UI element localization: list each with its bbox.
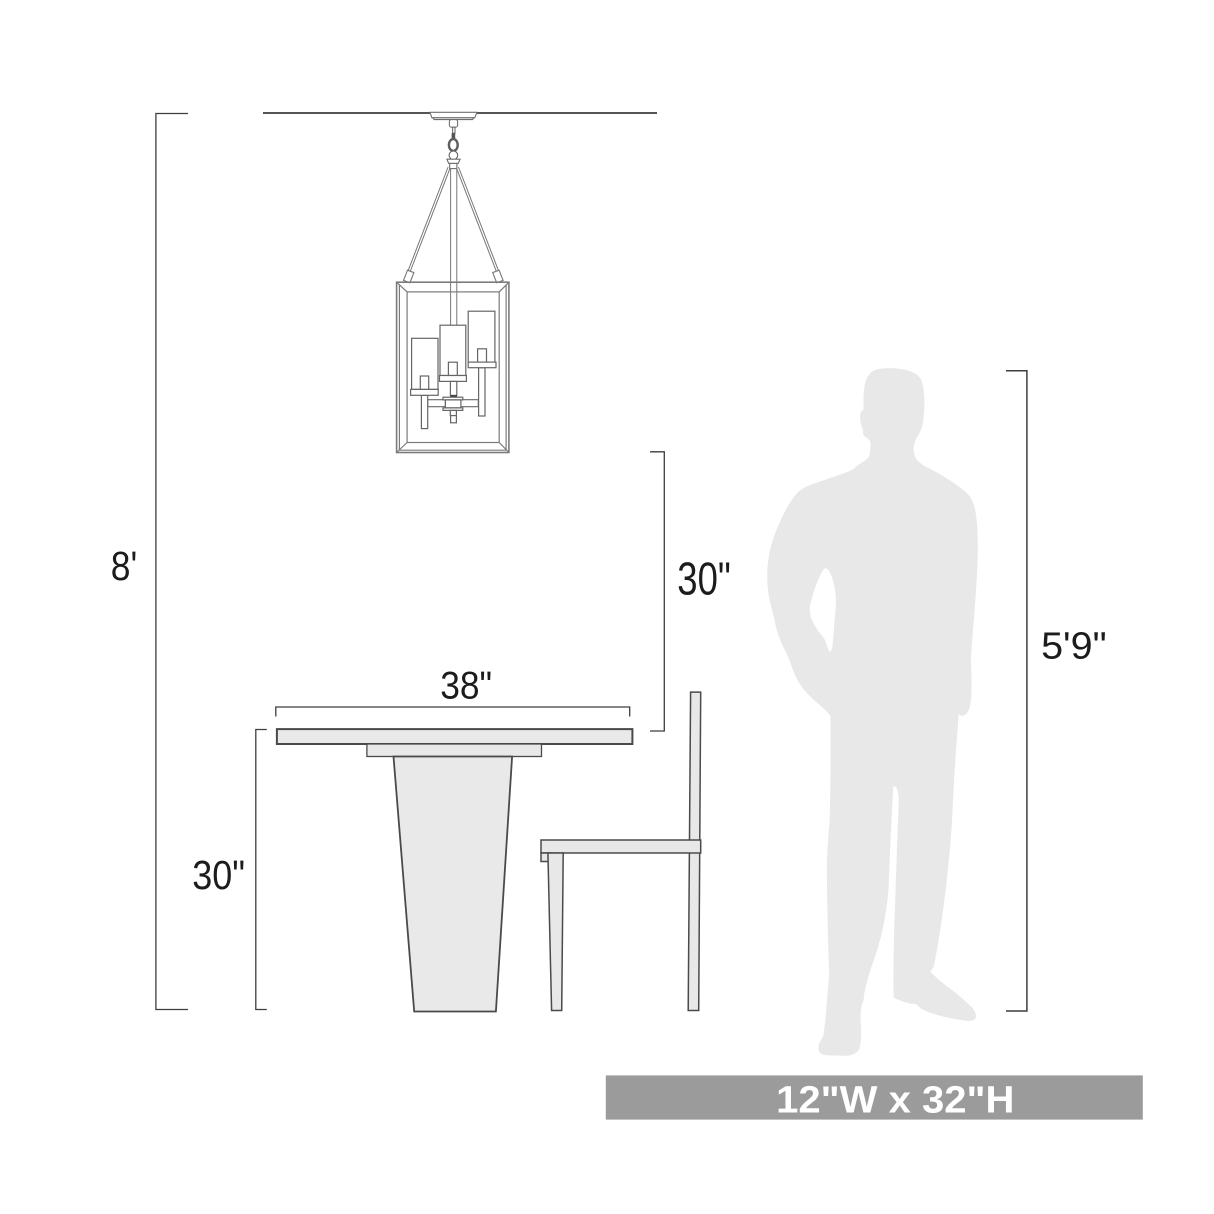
svg-text:30": 30"	[677, 552, 731, 604]
svg-text:8': 8'	[111, 543, 138, 589]
svg-text:5'9": 5'9"	[1041, 625, 1107, 667]
svg-text:30": 30"	[192, 852, 245, 898]
svg-text:38": 38"	[440, 665, 492, 708]
svg-text:12"W x 32"H: 12"W x 32"H	[776, 1079, 1014, 1121]
